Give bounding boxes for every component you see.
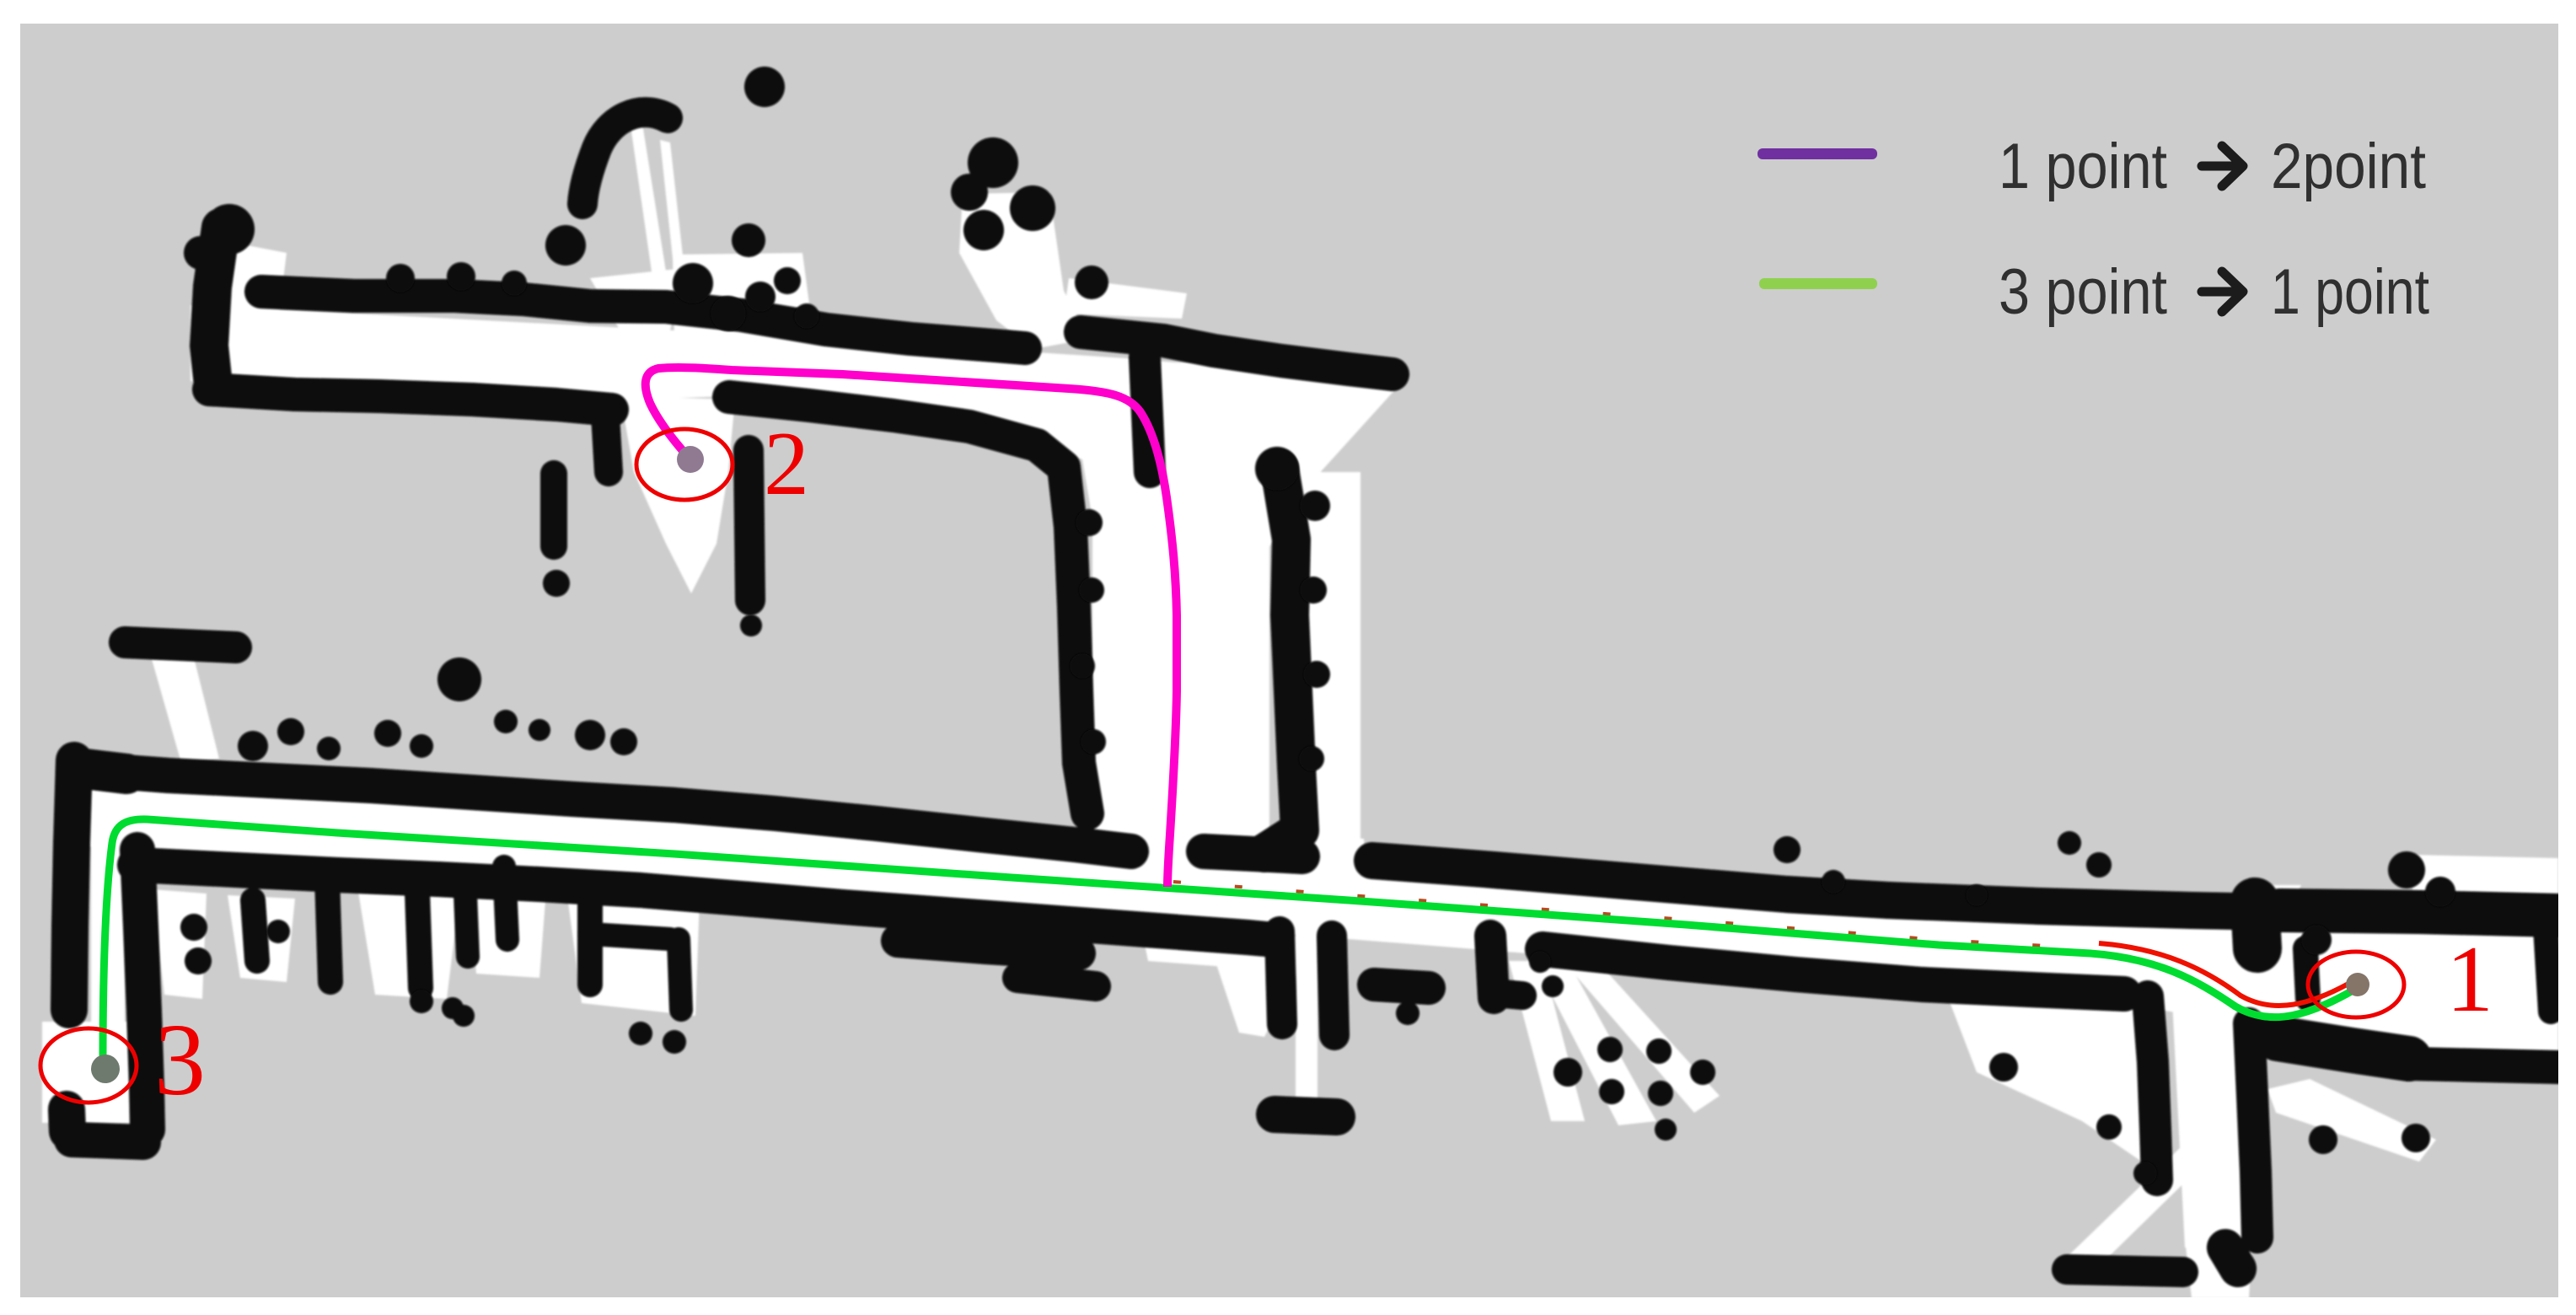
svg-text:2: 2 xyxy=(764,414,809,514)
svg-text:1 point: 1 point xyxy=(1999,131,2167,202)
svg-text:1: 1 xyxy=(2446,927,2493,1032)
svg-text:3: 3 xyxy=(154,1003,206,1117)
svg-text:1 point: 1 point xyxy=(2271,256,2429,328)
svg-text:2point: 2point xyxy=(2271,131,2426,202)
svg-text:3 point: 3 point xyxy=(1999,256,2167,328)
